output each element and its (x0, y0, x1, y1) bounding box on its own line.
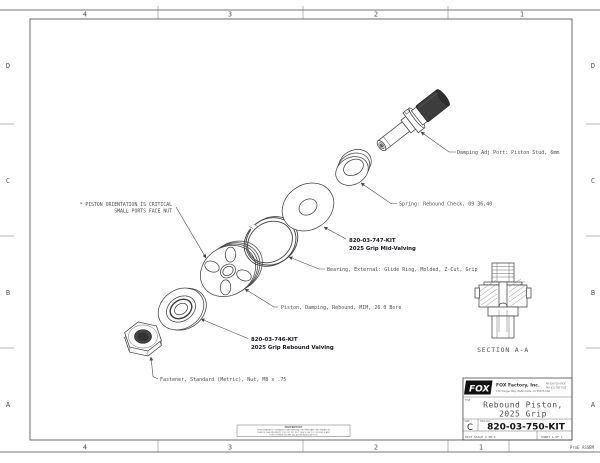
callout-reb-kit-number: 820-03-746-KIT (251, 337, 298, 343)
zone-right-d: D (591, 62, 595, 70)
piston-stud-part (371, 86, 453, 157)
company-phone: PH 800-FOX-SHOX (546, 383, 566, 386)
callout-mid-kit-name: 2025 Grip Mid-Valving (349, 246, 416, 252)
orientation-note-line1: * PISTON ORIENTATION IS CRITICAL (80, 202, 173, 208)
callout-stud-label: Damping Adj Port: Piston Stud, 6mm (457, 150, 559, 156)
mid-valving-disc-part (273, 173, 343, 240)
company-name: FOX Factory, Inc. (496, 383, 540, 389)
leader-lines (151, 132, 456, 379)
callout-bearing-label: Bearing, External: Glide Ring, Molded, Z… (327, 267, 478, 273)
proprietary-line3: FOR OTHERS EXCEPT AS AUTHORIZED BY FOX (270, 434, 318, 437)
title-cell-label: TITLE (465, 399, 472, 402)
engineering-drawing-sheet: 4 3 2 1 4 3 2 1 D C B A D C B A ProE ASS… (0, 0, 600, 463)
orientation-note-line2: SMALL PORTS FACE NUT (114, 209, 172, 215)
zone-bottom-2: 2 (374, 444, 378, 452)
callout-piston-label: Piston, Damping, Rebound, MIM, 26.0 Bore (281, 305, 401, 311)
zone-top-4: 4 (83, 11, 87, 19)
title-block: FOX FOX Factory, Inc. 130 Hangar Way, Wa… (463, 378, 572, 440)
zone-top-3: 3 (228, 11, 232, 19)
zone-left-a: A (6, 401, 11, 409)
drawing-number: 820-03-750-KIT (487, 423, 566, 433)
callout-spring-label: Spring: Rebound Check, 09 36,40 (399, 202, 492, 208)
rebound-check-spring-part (328, 144, 378, 191)
plot-scale: PLOT SCALE 2.08:1 (465, 435, 496, 439)
fox-logo-text: FOX (469, 385, 490, 395)
callout-fastener-label: Fastener, Standard (Metric), Nut, M8 x .… (160, 377, 286, 383)
zone-right-c: C (591, 177, 595, 185)
zone-left-b: B (6, 289, 10, 297)
zone-left-d: D (6, 62, 10, 70)
section-view: SECTION A-A (475, 263, 531, 354)
zone-bottom-3: 3 (228, 444, 232, 452)
zone-bottom-1: 1 (479, 444, 483, 452)
proprietary-header: PROPRIETARY (285, 426, 303, 429)
sheet-number: SHEET 1 OF 1 (541, 435, 563, 439)
callout-reb-kit-name: 2025 Grip Rebound Valving (251, 345, 334, 351)
callout-mid-kit-number: 820-03-747-KIT (349, 238, 396, 244)
drawing-title-line1: Rebound Piston, (483, 401, 563, 410)
company-address: 130 Hangar Way, Watsonville, CA 95076 US… (496, 390, 550, 393)
zone-top-1: 1 (520, 11, 524, 19)
sheet-size: C (467, 423, 473, 433)
drawing-canvas: 4 3 2 1 4 3 2 1 D C B A D C B A ProE ASS… (0, 0, 600, 463)
zone-right-b: B (591, 289, 595, 297)
drawing-title-line2: 2025 Grip (499, 410, 547, 419)
zone-top-2: 2 (374, 11, 378, 19)
zone-bottom-4: 4 (83, 444, 87, 452)
company-fax: FAX 831-768-7026 (546, 387, 567, 390)
corner-note: ProE ASSEM (570, 445, 595, 450)
zone-left-c: C (6, 177, 10, 185)
proprietary-note-box: PROPRIETARY THIS DRAWING CONTAINS CONFID… (237, 425, 350, 437)
zone-right-a: A (591, 401, 596, 409)
hex-nut-part (125, 322, 162, 356)
section-label: SECTION A-A (477, 346, 529, 354)
fox-logo: FOX (464, 381, 493, 395)
